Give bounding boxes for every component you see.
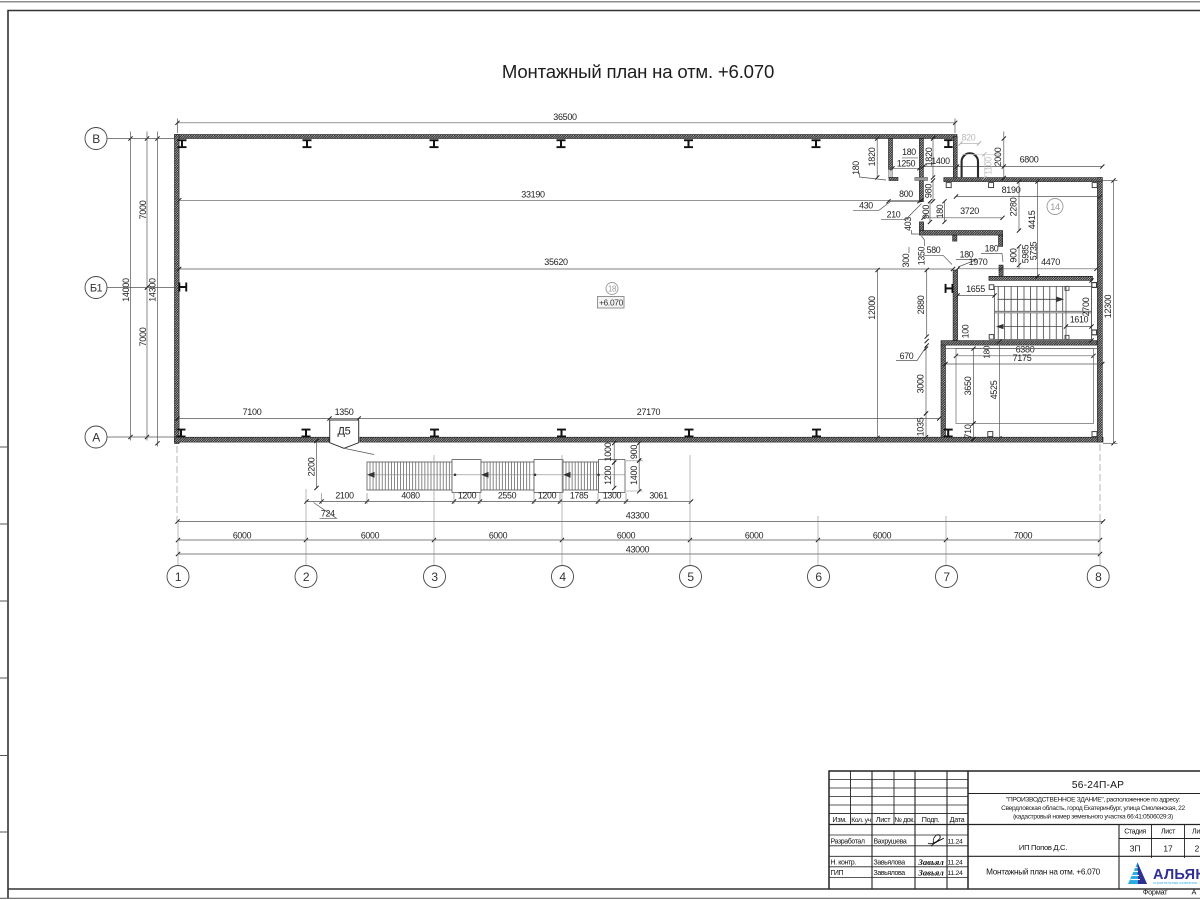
- svg-text:900: 900: [629, 445, 639, 459]
- svg-text:4080: 4080: [401, 490, 420, 500]
- svg-text:100: 100: [961, 324, 971, 338]
- svg-text:А: А: [92, 430, 100, 444]
- svg-text:3061: 3061: [649, 490, 668, 500]
- svg-text:35620: 35620: [544, 257, 568, 267]
- svg-text:1655: 1655: [966, 284, 985, 294]
- svg-text:8: 8: [1095, 570, 1102, 584]
- svg-text:2000: 2000: [993, 147, 1003, 166]
- svg-text:180: 180: [902, 147, 916, 157]
- svg-text:11.24: 11.24: [947, 860, 963, 867]
- svg-text:1350: 1350: [917, 246, 927, 265]
- svg-text:1200: 1200: [538, 490, 557, 500]
- svg-text:27170: 27170: [637, 407, 661, 417]
- svg-text:900: 900: [921, 205, 931, 219]
- svg-text:1100: 1100: [983, 157, 993, 175]
- svg-text:1400: 1400: [931, 156, 950, 166]
- svg-text:12000: 12000: [867, 296, 877, 320]
- svg-text:980: 980: [924, 184, 934, 198]
- svg-text:11.24: 11.24: [947, 870, 963, 877]
- svg-text:403: 403: [903, 217, 913, 231]
- svg-text:7000: 7000: [138, 200, 148, 219]
- svg-text:ГИП: ГИП: [831, 870, 844, 877]
- svg-text:Завьял: Завьял: [918, 867, 945, 877]
- svg-text:1200: 1200: [603, 466, 613, 485]
- svg-text:33190: 33190: [521, 189, 545, 199]
- svg-text:4470: 4470: [1041, 257, 1060, 267]
- svg-text:180: 180: [935, 204, 945, 218]
- svg-text:7: 7: [943, 570, 950, 584]
- svg-text:2: 2: [303, 570, 310, 584]
- svg-text:1350: 1350: [335, 407, 354, 417]
- svg-text:Монтажный план на отм. +6.070: Монтажный план на отм. +6.070: [502, 61, 774, 82]
- svg-text:Завьялова: Завьялова: [874, 870, 906, 877]
- svg-text:Д5: Д5: [338, 425, 351, 437]
- svg-text:1820: 1820: [867, 147, 877, 166]
- svg-text:710: 710: [963, 424, 973, 438]
- svg-text:820: 820: [962, 133, 976, 143]
- svg-text:12300: 12300: [1103, 294, 1113, 318]
- svg-text:Н. контр.: Н. контр.: [831, 859, 857, 866]
- svg-text:11.24: 11.24: [947, 838, 963, 845]
- svg-text:14300: 14300: [148, 278, 158, 302]
- svg-text:Б1: Б1: [90, 282, 103, 294]
- svg-text:3: 3: [431, 570, 438, 584]
- svg-text:4525: 4525: [989, 380, 999, 399]
- svg-text:Подп.: Подп.: [922, 815, 940, 824]
- svg-text:1970: 1970: [969, 257, 988, 267]
- svg-text:180: 180: [851, 161, 861, 175]
- svg-text:Разработал: Разработал: [831, 838, 865, 846]
- svg-text:56-24П-АР: 56-24П-АР: [1072, 780, 1124, 791]
- svg-text:3650: 3650: [963, 376, 973, 395]
- svg-text:+6.070: +6.070: [599, 297, 624, 307]
- svg-text:2: 2: [1195, 844, 1200, 854]
- svg-text:строительная компания: строительная компания: [1153, 881, 1197, 885]
- svg-text:1035: 1035: [915, 417, 925, 436]
- svg-text:1300: 1300: [603, 490, 622, 500]
- svg-text:В: В: [92, 132, 100, 146]
- svg-text:Лист: Лист: [1161, 829, 1176, 836]
- svg-text:4415: 4415: [1027, 210, 1037, 229]
- svg-text:7000: 7000: [1014, 530, 1033, 540]
- svg-text:43000: 43000: [626, 544, 650, 554]
- svg-text:36500: 36500: [553, 112, 577, 122]
- svg-text:Ли: Ли: [1192, 829, 1200, 836]
- svg-text:6: 6: [815, 570, 822, 584]
- svg-text:А: А: [1192, 888, 1197, 897]
- svg-text:2280: 2280: [1008, 197, 1018, 216]
- svg-text:724: 724: [321, 509, 335, 519]
- svg-text:7175: 7175: [1013, 353, 1032, 363]
- svg-text:900: 900: [1008, 248, 1018, 262]
- svg-text:2200: 2200: [307, 457, 317, 476]
- svg-text:6000: 6000: [873, 530, 892, 540]
- svg-text:7100: 7100: [243, 407, 262, 417]
- svg-text:Монтажный план на отм. +6.070: Монтажный план на отм. +6.070: [986, 867, 1100, 876]
- svg-text:8190: 8190: [1002, 185, 1021, 195]
- svg-text:17: 17: [1163, 844, 1173, 854]
- svg-text:Дата: Дата: [950, 815, 965, 824]
- svg-text:№ док.: № док.: [894, 817, 914, 824]
- svg-text:ЗП: ЗП: [1129, 844, 1140, 854]
- svg-text:670: 670: [900, 351, 914, 361]
- svg-text:Кол. уч: Кол. уч: [851, 817, 871, 824]
- svg-text:580: 580: [927, 245, 941, 255]
- svg-text:430: 430: [859, 201, 873, 211]
- svg-text:800: 800: [899, 189, 913, 199]
- svg-text:Свердловская область, город Ек: Свердловская область, город Екатеринбург…: [1001, 804, 1185, 812]
- svg-text:3000: 3000: [915, 374, 925, 393]
- svg-text:4: 4: [559, 570, 566, 584]
- svg-text:"ПРОИЗВОДСТВЕННОЕ ЗДАНИЕ", рас: "ПРОИЗВОДСТВЕННОЕ ЗДАНИЕ", расположенное…: [1006, 797, 1181, 804]
- svg-text:6000: 6000: [745, 530, 764, 540]
- svg-text:Стадия: Стадия: [1124, 829, 1146, 836]
- svg-text:180: 180: [985, 244, 999, 254]
- svg-text:ИП Попов Д.С.: ИП Попов Д.С.: [1019, 843, 1067, 852]
- svg-text:14000: 14000: [121, 278, 131, 302]
- svg-text:300: 300: [901, 253, 911, 267]
- svg-text:2880: 2880: [916, 295, 926, 314]
- svg-text:18: 18: [608, 284, 616, 293]
- svg-text:14: 14: [1050, 202, 1060, 212]
- svg-text:3720: 3720: [960, 206, 979, 216]
- svg-text:6000: 6000: [489, 530, 508, 540]
- svg-text:2550: 2550: [498, 490, 517, 500]
- svg-text:1400: 1400: [629, 466, 639, 485]
- svg-text:1000: 1000: [603, 442, 613, 461]
- svg-text:Завьял: Завьял: [918, 857, 945, 867]
- svg-text:1610: 1610: [1070, 315, 1089, 325]
- svg-text:6000: 6000: [617, 530, 636, 540]
- svg-text:6800: 6800: [1020, 155, 1039, 165]
- svg-text:5735: 5735: [1029, 241, 1039, 260]
- svg-text:1200: 1200: [458, 490, 477, 500]
- svg-text:6000: 6000: [361, 530, 380, 540]
- svg-text:6000: 6000: [233, 530, 252, 540]
- svg-text:43300: 43300: [626, 511, 650, 521]
- svg-text:210: 210: [887, 210, 901, 220]
- svg-text:1: 1: [175, 570, 182, 584]
- svg-text:1785: 1785: [570, 490, 589, 500]
- svg-text:2100: 2100: [335, 490, 354, 500]
- svg-text:7000: 7000: [138, 327, 148, 346]
- svg-text:Вахрушева: Вахрушева: [874, 839, 907, 846]
- svg-text:(кадастровый номер земельного: (кадастровый номер земельного участка 66…: [1013, 813, 1173, 821]
- svg-text:Изм.: Изм.: [832, 815, 847, 824]
- svg-text:Завьялова: Завьялова: [874, 859, 906, 866]
- svg-text:Лист: Лист: [876, 815, 891, 824]
- svg-text:180: 180: [983, 345, 992, 359]
- svg-text:1250: 1250: [897, 158, 916, 168]
- svg-text:5: 5: [687, 570, 694, 584]
- svg-text:Формат: Формат: [1143, 888, 1168, 897]
